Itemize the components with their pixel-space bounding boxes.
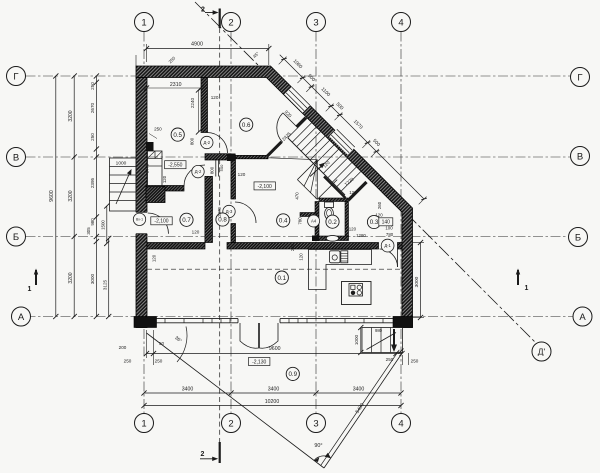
svg-text:90°: 90° <box>314 443 322 449</box>
svg-text:980: 980 <box>375 328 383 333</box>
svg-text:260: 260 <box>377 201 382 209</box>
svg-text:2: 2 <box>228 17 233 28</box>
svg-text:0.1: 0.1 <box>277 275 286 282</box>
svg-text:120: 120 <box>375 213 383 218</box>
svg-text:50: 50 <box>159 341 165 346</box>
svg-text:А4: А4 <box>311 219 317 224</box>
svg-text:Д-3: Д-3 <box>226 209 233 214</box>
svg-text:1000: 1000 <box>354 334 359 345</box>
svg-text:250: 250 <box>155 359 163 364</box>
svg-text:0.5: 0.5 <box>173 132 182 139</box>
svg-text:120: 120 <box>151 254 156 262</box>
svg-text:Д': Д' <box>538 347 546 357</box>
svg-text:2470: 2470 <box>217 207 222 217</box>
svg-text:0.3: 0.3 <box>370 219 379 226</box>
svg-text:250: 250 <box>124 359 132 364</box>
svg-text:305: 305 <box>86 227 91 235</box>
svg-text:Д-2: Д-2 <box>204 140 211 145</box>
svg-text:3400: 3400 <box>182 387 194 393</box>
svg-text:3200: 3200 <box>68 190 74 201</box>
svg-text:2670: 2670 <box>90 102 95 113</box>
svg-text:0.9: 0.9 <box>288 371 297 378</box>
svg-text:-2,100: -2,100 <box>258 184 272 190</box>
svg-text:В: В <box>13 152 19 163</box>
svg-text:0.7: 0.7 <box>182 217 191 224</box>
svg-text:9600: 9600 <box>49 190 55 202</box>
svg-text:4: 4 <box>398 17 403 28</box>
svg-text:-2,550: -2,550 <box>168 163 182 169</box>
svg-text:В: В <box>577 151 583 162</box>
svg-text:3: 3 <box>313 17 318 28</box>
svg-text:470: 470 <box>295 192 300 200</box>
svg-text:2240: 2240 <box>190 97 195 108</box>
svg-text:Г: Г <box>13 71 18 82</box>
svg-text:3400: 3400 <box>353 387 365 393</box>
svg-text:0.6: 0.6 <box>242 122 251 129</box>
svg-text:250: 250 <box>154 127 162 132</box>
svg-text:10200: 10200 <box>265 399 280 405</box>
svg-text:1000: 1000 <box>116 161 127 167</box>
svg-text:2310: 2310 <box>170 82 182 88</box>
svg-text:4: 4 <box>398 418 403 429</box>
svg-text:2395: 2395 <box>90 177 95 188</box>
svg-text:250: 250 <box>386 357 394 362</box>
svg-text:800: 800 <box>190 137 195 145</box>
svg-text:250: 250 <box>90 133 95 141</box>
svg-text:0.2: 0.2 <box>328 219 337 226</box>
svg-text:1470: 1470 <box>144 163 149 173</box>
svg-text:120: 120 <box>238 172 246 177</box>
svg-text:Д-2: Д-2 <box>195 169 202 174</box>
svg-text:1500: 1500 <box>100 220 105 230</box>
svg-text:200: 200 <box>119 345 127 350</box>
svg-text:1: 1 <box>525 285 529 292</box>
svg-text:Б: Б <box>13 232 19 243</box>
svg-text:980: 980 <box>90 218 95 226</box>
svg-text:1: 1 <box>28 286 32 293</box>
svg-text:120: 120 <box>211 95 219 100</box>
svg-text:Б: Б <box>575 232 581 243</box>
svg-text:120: 120 <box>299 253 304 261</box>
svg-text:120: 120 <box>162 175 167 183</box>
svg-text:200: 200 <box>290 243 295 251</box>
svg-text:А: А <box>18 312 25 323</box>
svg-text:120: 120 <box>192 230 200 235</box>
svg-text:3400: 3400 <box>268 387 280 393</box>
svg-text:3: 3 <box>313 418 318 429</box>
svg-text:250: 250 <box>411 359 419 364</box>
svg-text:1: 1 <box>141 17 146 28</box>
svg-text:100: 100 <box>385 226 393 231</box>
svg-text:-2,130: -2,130 <box>252 359 266 365</box>
svg-text:780: 780 <box>298 217 303 225</box>
svg-text:3000: 3000 <box>414 276 420 287</box>
svg-text:3125: 3125 <box>102 279 107 290</box>
svg-text:2: 2 <box>201 451 205 458</box>
svg-text:9600: 9600 <box>269 346 281 352</box>
svg-text:1280: 1280 <box>356 233 366 238</box>
svg-text:Д-1: Д-1 <box>384 243 391 248</box>
svg-text:-2,100: -2,100 <box>154 219 168 225</box>
svg-text:А: А <box>579 312 586 323</box>
svg-text:800: 800 <box>210 166 215 174</box>
svg-text:Вх-1: Вх-1 <box>136 218 143 222</box>
svg-text:3000: 3000 <box>90 273 95 284</box>
svg-text:2: 2 <box>228 418 233 429</box>
svg-text:3200: 3200 <box>68 272 74 283</box>
svg-text:500: 500 <box>219 164 224 171</box>
svg-text:1: 1 <box>141 418 146 429</box>
svg-text:0.4: 0.4 <box>279 218 288 225</box>
svg-text:120: 120 <box>349 190 357 195</box>
svg-text:250: 250 <box>90 82 95 90</box>
svg-text:4900: 4900 <box>191 42 203 48</box>
svg-text:Г: Г <box>577 72 582 83</box>
svg-text:780: 780 <box>386 232 394 237</box>
svg-text:3200: 3200 <box>68 110 74 121</box>
svg-text:120: 120 <box>349 227 357 232</box>
